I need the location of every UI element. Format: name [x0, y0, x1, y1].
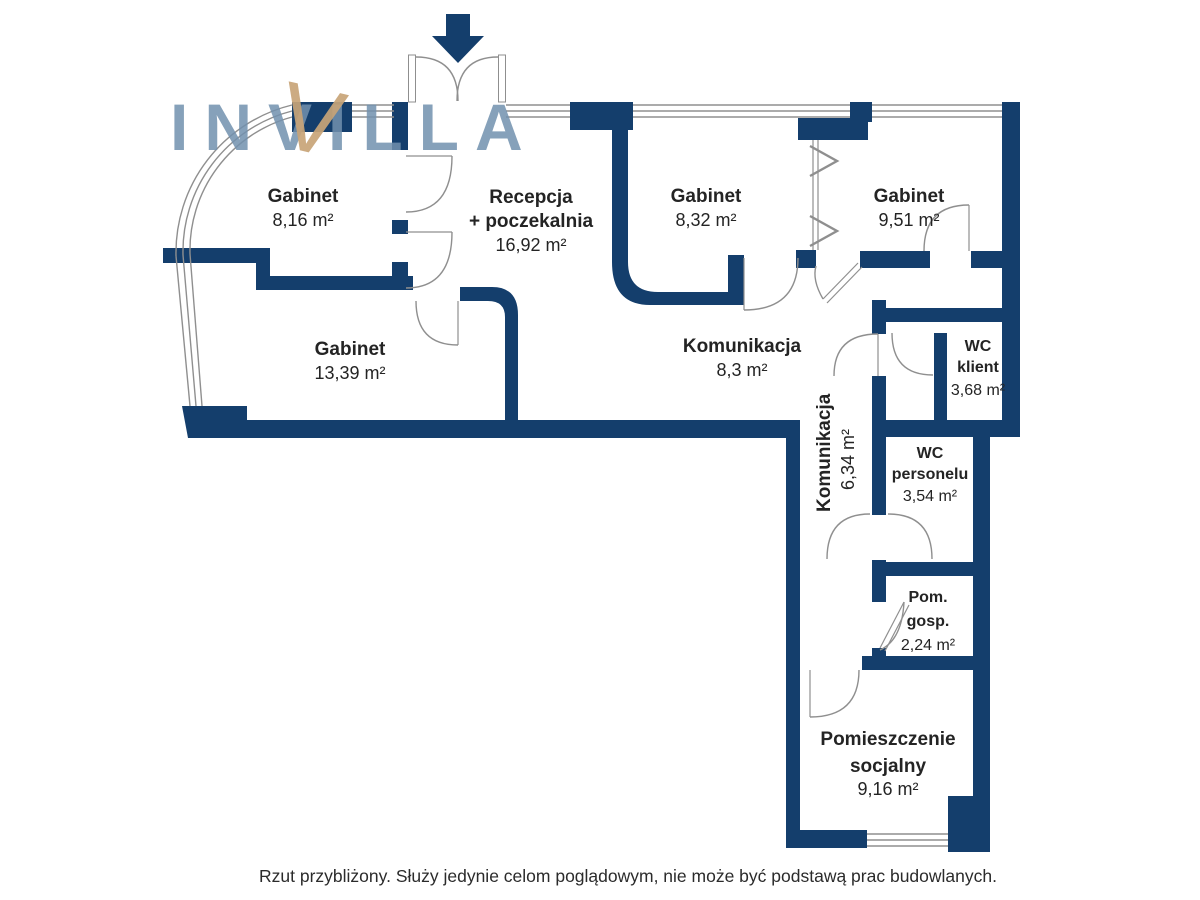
svg-text:gosp.: gosp. [907, 613, 950, 630]
room-label-pom-socjalny: Pomieszczenie socjalny 9,16 m² [820, 729, 955, 799]
svg-text:9,16 m²: 9,16 m² [857, 779, 918, 799]
logo: INVILLA V [170, 61, 539, 177]
room-label-gabinet-3: Gabinet 9,51 m² [874, 186, 945, 230]
room-label-recepcja: Recepcja + poczekalnia 16,92 m² [469, 187, 594, 255]
room-label-komunikacja-2: Komunikacja 6,34 m² [814, 393, 858, 512]
svg-text:Komunikacja: Komunikacja [683, 336, 802, 357]
svg-text:8,3 m²: 8,3 m² [716, 360, 767, 380]
svg-text:16,92 m²: 16,92 m² [495, 235, 566, 255]
svg-text:WC: WC [965, 338, 992, 355]
disclaimer-text: Rzut przybliżony. Służy jedynie celom po… [259, 866, 997, 886]
room-label-gabinet-1: Gabinet 8,16 m² [268, 186, 339, 230]
svg-text:Gabinet: Gabinet [268, 186, 339, 207]
svg-text:3,54 m²: 3,54 m² [903, 488, 958, 505]
svg-text:13,39 m²: 13,39 m² [314, 363, 385, 383]
room-label-komunikacja-1: Komunikacja 8,3 m² [683, 336, 802, 380]
svg-text:2,24 m²: 2,24 m² [901, 637, 956, 654]
room-label-gabinet-4: Gabinet 13,39 m² [314, 339, 386, 383]
svg-text:Gabinet: Gabinet [315, 339, 386, 360]
svg-text:Pomieszczenie: Pomieszczenie [820, 729, 955, 750]
svg-text:8,16 m²: 8,16 m² [272, 210, 333, 230]
svg-text:WC: WC [917, 445, 944, 462]
floorplan-canvas: INVILLA V Gabinet 8,16 m² Recepcja + poc… [0, 0, 1200, 900]
svg-text:Pom.: Pom. [908, 589, 947, 606]
svg-text:Gabinet: Gabinet [671, 186, 742, 207]
svg-text:socjalny: socjalny [850, 756, 926, 777]
room-label-wc-personelu: WC personelu 3,54 m² [892, 445, 968, 505]
room-label-gabinet-2: Gabinet 8,32 m² [671, 186, 742, 230]
svg-text:+ poczekalnia: + poczekalnia [469, 211, 594, 232]
svg-text:3,68 m²: 3,68 m² [951, 382, 1006, 399]
room-label-wc-klient: WC klient 3,68 m² [951, 338, 1006, 399]
svg-text:Recepcja: Recepcja [489, 187, 573, 208]
room-label-pom-gosp: Pom. gosp. 2,24 m² [901, 589, 956, 654]
svg-text:Komunikacja: Komunikacja [814, 393, 835, 512]
svg-text:6,34 m²: 6,34 m² [838, 429, 858, 490]
logo-text: INVILLA [170, 90, 539, 164]
svg-text:klient: klient [957, 359, 999, 376]
svg-text:9,51 m²: 9,51 m² [878, 210, 939, 230]
svg-text:personelu: personelu [892, 466, 968, 483]
svg-text:Gabinet: Gabinet [874, 186, 945, 207]
entrance-arrow-icon [432, 14, 484, 63]
svg-text:8,32 m²: 8,32 m² [675, 210, 736, 230]
